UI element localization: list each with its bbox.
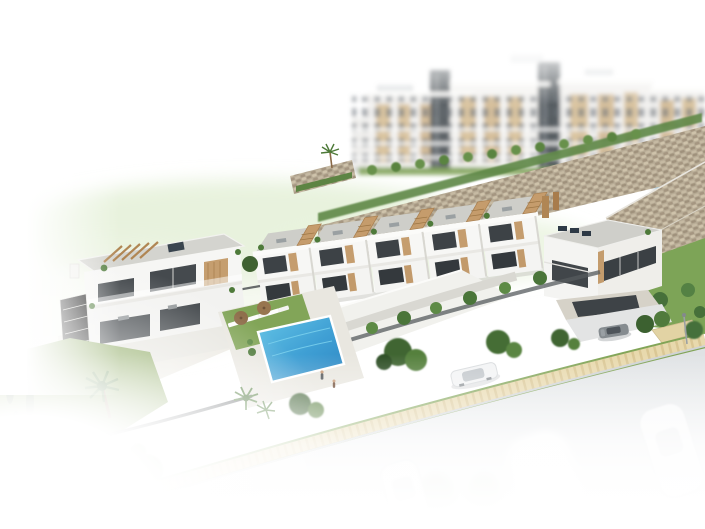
person-2 [333,380,336,388]
render-canvas: Aerial 3D architectural rendering of a m… [0,0,705,529]
villa-wood-panel [598,250,604,284]
person-1 [320,370,323,379]
architectural-render-scene: Aerial 3D architectural rendering of a m… [0,0,705,529]
